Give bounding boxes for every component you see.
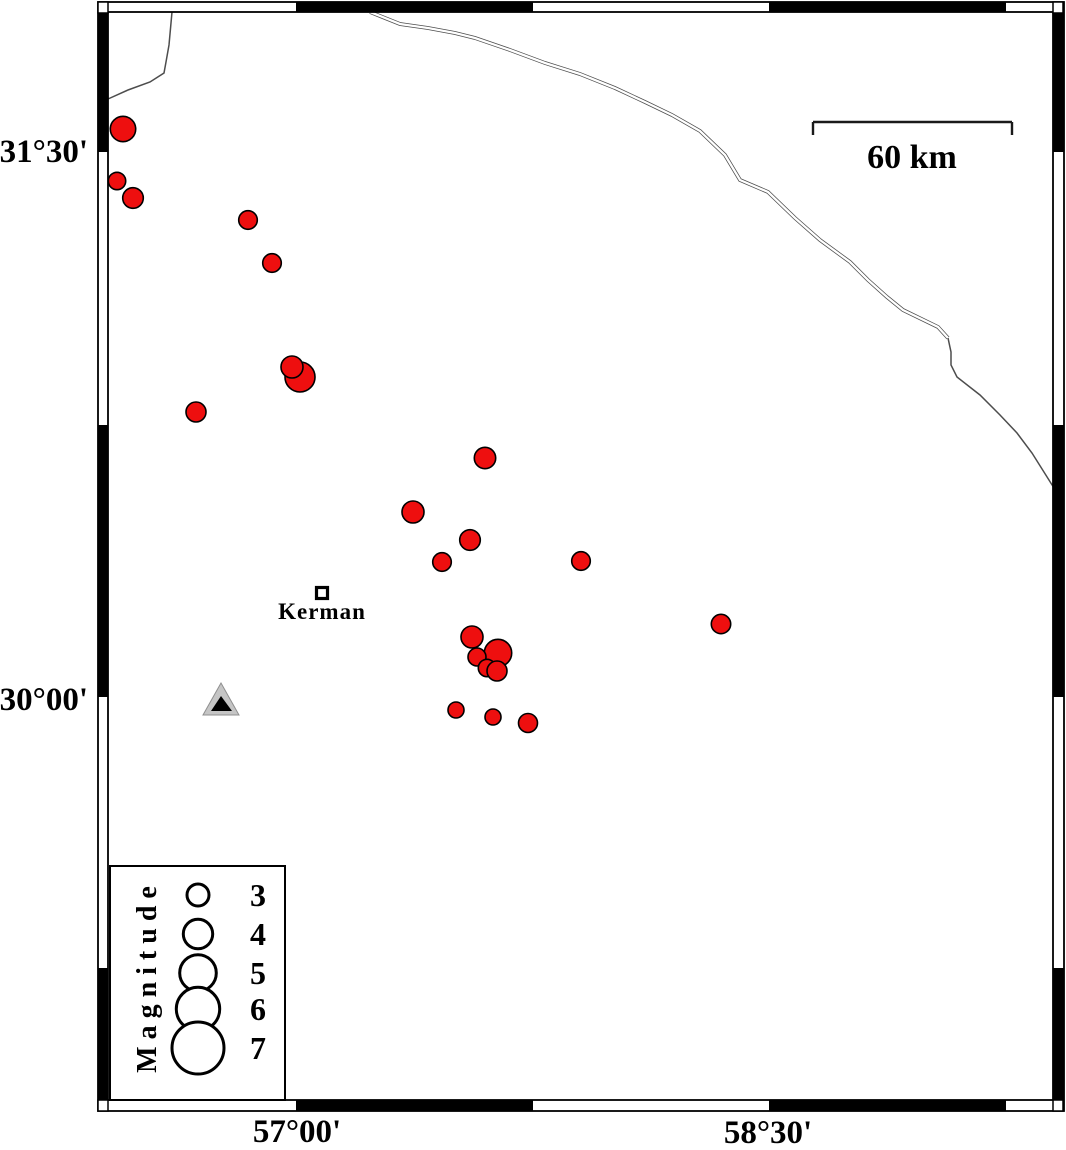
lon-label-58-30: 58°30' [668, 1113, 868, 1150]
lon-label-57-00: 57°00' [197, 1112, 397, 1150]
epicenter-marker [239, 211, 258, 230]
epicenter-marker [433, 553, 452, 572]
frame-corner [98, 2, 108, 13]
epicenter-marker [110, 116, 135, 141]
frame-segment [1053, 425, 1064, 697]
lat-label-31-30: 31°30' [0, 132, 88, 172]
legend-magnitude-circle [187, 884, 209, 906]
frame-corner [1053, 1100, 1063, 1111]
epicenter-marker [123, 188, 144, 209]
legend-magnitude-circle [172, 1022, 224, 1074]
frame-segment [1053, 968, 1064, 1100]
frame-segment [98, 425, 108, 697]
legend-magnitude-circle [183, 919, 212, 948]
frame-corner [98, 1100, 108, 1111]
epicenter-marker [572, 552, 591, 571]
city-label-kerman: Kerman [232, 598, 412, 626]
frame-segment [98, 12, 108, 152]
border-line [108, 12, 172, 99]
frame-segment [98, 968, 108, 1100]
epicenter-marker [263, 254, 282, 273]
lat-label-30-00: 30°00' [0, 680, 88, 720]
epicenter-marker [474, 447, 495, 468]
legend-value-7: 7 [228, 1028, 288, 1068]
legend-value-4: 4 [228, 914, 288, 954]
frame-corner [1053, 2, 1063, 13]
city-marker-square [317, 588, 328, 599]
scale-bar [813, 122, 1012, 135]
epicenter-marker [108, 172, 125, 189]
frame-segment [1053, 12, 1064, 152]
scalebar-label: 60 km [812, 137, 1012, 179]
frame-segment [296, 1100, 533, 1111]
legend-value-3: 3 [228, 875, 288, 915]
frame-segment [296, 2, 533, 12]
epicenter-marker [460, 530, 481, 551]
legend-title-magnitude: Magnitude [130, 856, 166, 1096]
epicenter-marker [711, 614, 730, 633]
epicenter-marker [448, 702, 464, 718]
epicenter-marker [281, 356, 303, 378]
seismicity-map-figure: 31°30' 30°00' 57°00' 58°30' 60 km Kerman… [0, 0, 1066, 1150]
frame-segment [769, 1100, 1006, 1111]
epicenter-marker [485, 709, 501, 725]
epicenter-marker [402, 501, 424, 523]
epicenter-marker [186, 402, 206, 422]
legend-value-6: 6 [228, 989, 288, 1029]
epicenter-marker [487, 661, 507, 681]
border-line [948, 338, 1054, 488]
epicenter-marker [461, 626, 483, 648]
legend-value-5: 5 [228, 953, 288, 993]
epicenter-marker [519, 714, 538, 733]
frame-segment [769, 2, 1006, 12]
